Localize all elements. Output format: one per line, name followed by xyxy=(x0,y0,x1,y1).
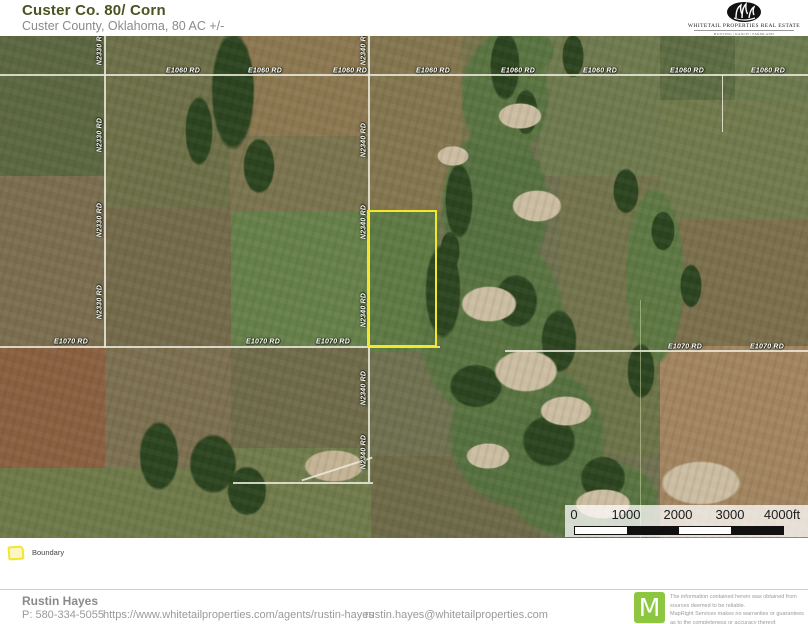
map-viewport: E1060 RDE1060 RDE1060 RDE1060 RDE1060 RD… xyxy=(0,36,808,538)
road-label: N2330 RD xyxy=(97,285,104,319)
road-label: N2340 RD xyxy=(361,123,368,157)
road-label: E1060 RD xyxy=(501,68,535,75)
logo-tagline: HUNTING | RANCH | FARMLAND xyxy=(694,30,794,36)
road-line xyxy=(104,36,106,348)
road-label: E1060 RD xyxy=(333,68,367,75)
scale-bar-segments xyxy=(574,526,784,535)
scalebar-segment xyxy=(731,527,783,534)
road-line xyxy=(640,300,641,538)
road-label: E1060 RD xyxy=(751,68,785,75)
road-label: E1060 RD xyxy=(670,68,704,75)
scalebar-tick: 1000 xyxy=(612,507,641,522)
road-label: E1070 RD xyxy=(246,339,280,346)
logo-name: WHITETAIL PROPERTIES REAL ESTATE xyxy=(684,23,804,29)
road-label: E1060 RD xyxy=(583,68,617,75)
disclaimer-line: MapRight Services makes no warranties or… xyxy=(670,610,806,619)
disclaimer-line: The information contained herein was obt… xyxy=(670,593,806,602)
scalebar-tick: 2000 xyxy=(664,507,693,522)
road-label: N2340 RD xyxy=(361,435,368,469)
agent-profile-link[interactable]: https://www.whitetailproperties.com/agen… xyxy=(103,609,374,621)
road-label: E1070 RD xyxy=(54,339,88,346)
mapright-logo: M xyxy=(634,592,665,623)
scale-bar: 01000200030004000ft xyxy=(565,505,808,537)
scalebar-tick: 3000 xyxy=(716,507,745,522)
property-boundary xyxy=(367,210,437,347)
road-label: N2340 RD xyxy=(361,36,368,65)
road-label: E1070 RD xyxy=(750,344,784,351)
road-label: E1070 RD xyxy=(668,344,702,351)
header: Custer Co. 80/ Corn Custer County, Oklah… xyxy=(0,0,808,36)
road-label: N2330 RD xyxy=(97,203,104,237)
whitetail-properties-logo: WHITETAIL PROPERTIES REAL ESTATE HUNTING… xyxy=(684,1,804,35)
disclaimer-line: sources deemed to be reliable. xyxy=(670,602,806,611)
scalebar-tick: 4000ft xyxy=(764,507,800,522)
road-label: E1060 RD xyxy=(416,68,450,75)
agent-name: Rustin Hayes xyxy=(22,594,98,608)
road-label: N2340 RD xyxy=(361,293,368,327)
agent-email-link[interactable]: rustin.hayes@whitetailproperties.com xyxy=(365,609,548,621)
road-label: E1070 RD xyxy=(316,339,350,346)
legend: Boundary xyxy=(0,538,808,589)
map-export-page: Custer Co. 80/ Corn Custer County, Oklah… xyxy=(0,0,808,624)
scalebar-tick: 0 xyxy=(570,507,577,522)
road-label: N2340 RD xyxy=(361,371,368,405)
scalebar-segment xyxy=(627,527,679,534)
road-label: N2330 RD xyxy=(97,118,104,152)
page-subtitle: Custer County, Oklahoma, 80 AC +/- xyxy=(22,19,224,33)
footer: Rustin Hayes P: 580-334-5055 https://www… xyxy=(0,589,808,624)
legend-label: Boundary xyxy=(32,548,64,557)
page-title: Custer Co. 80/ Corn xyxy=(22,2,166,19)
road-label: N2340 RD xyxy=(361,205,368,239)
agent-phone: P: 580-334-5055 xyxy=(22,609,104,621)
whitetail-antlers-icon xyxy=(722,1,766,23)
road-label: E1060 RD xyxy=(248,68,282,75)
road-label: E1060 RD xyxy=(166,68,200,75)
road-label: N2330 RD xyxy=(97,36,104,65)
boundary-swatch-icon xyxy=(8,545,25,560)
attribution-disclaimer: The information contained herein was obt… xyxy=(670,593,806,624)
road-line xyxy=(722,75,723,132)
disclaimer-line: as to the completeness or accuracy there… xyxy=(670,619,806,624)
road-line xyxy=(233,482,373,484)
